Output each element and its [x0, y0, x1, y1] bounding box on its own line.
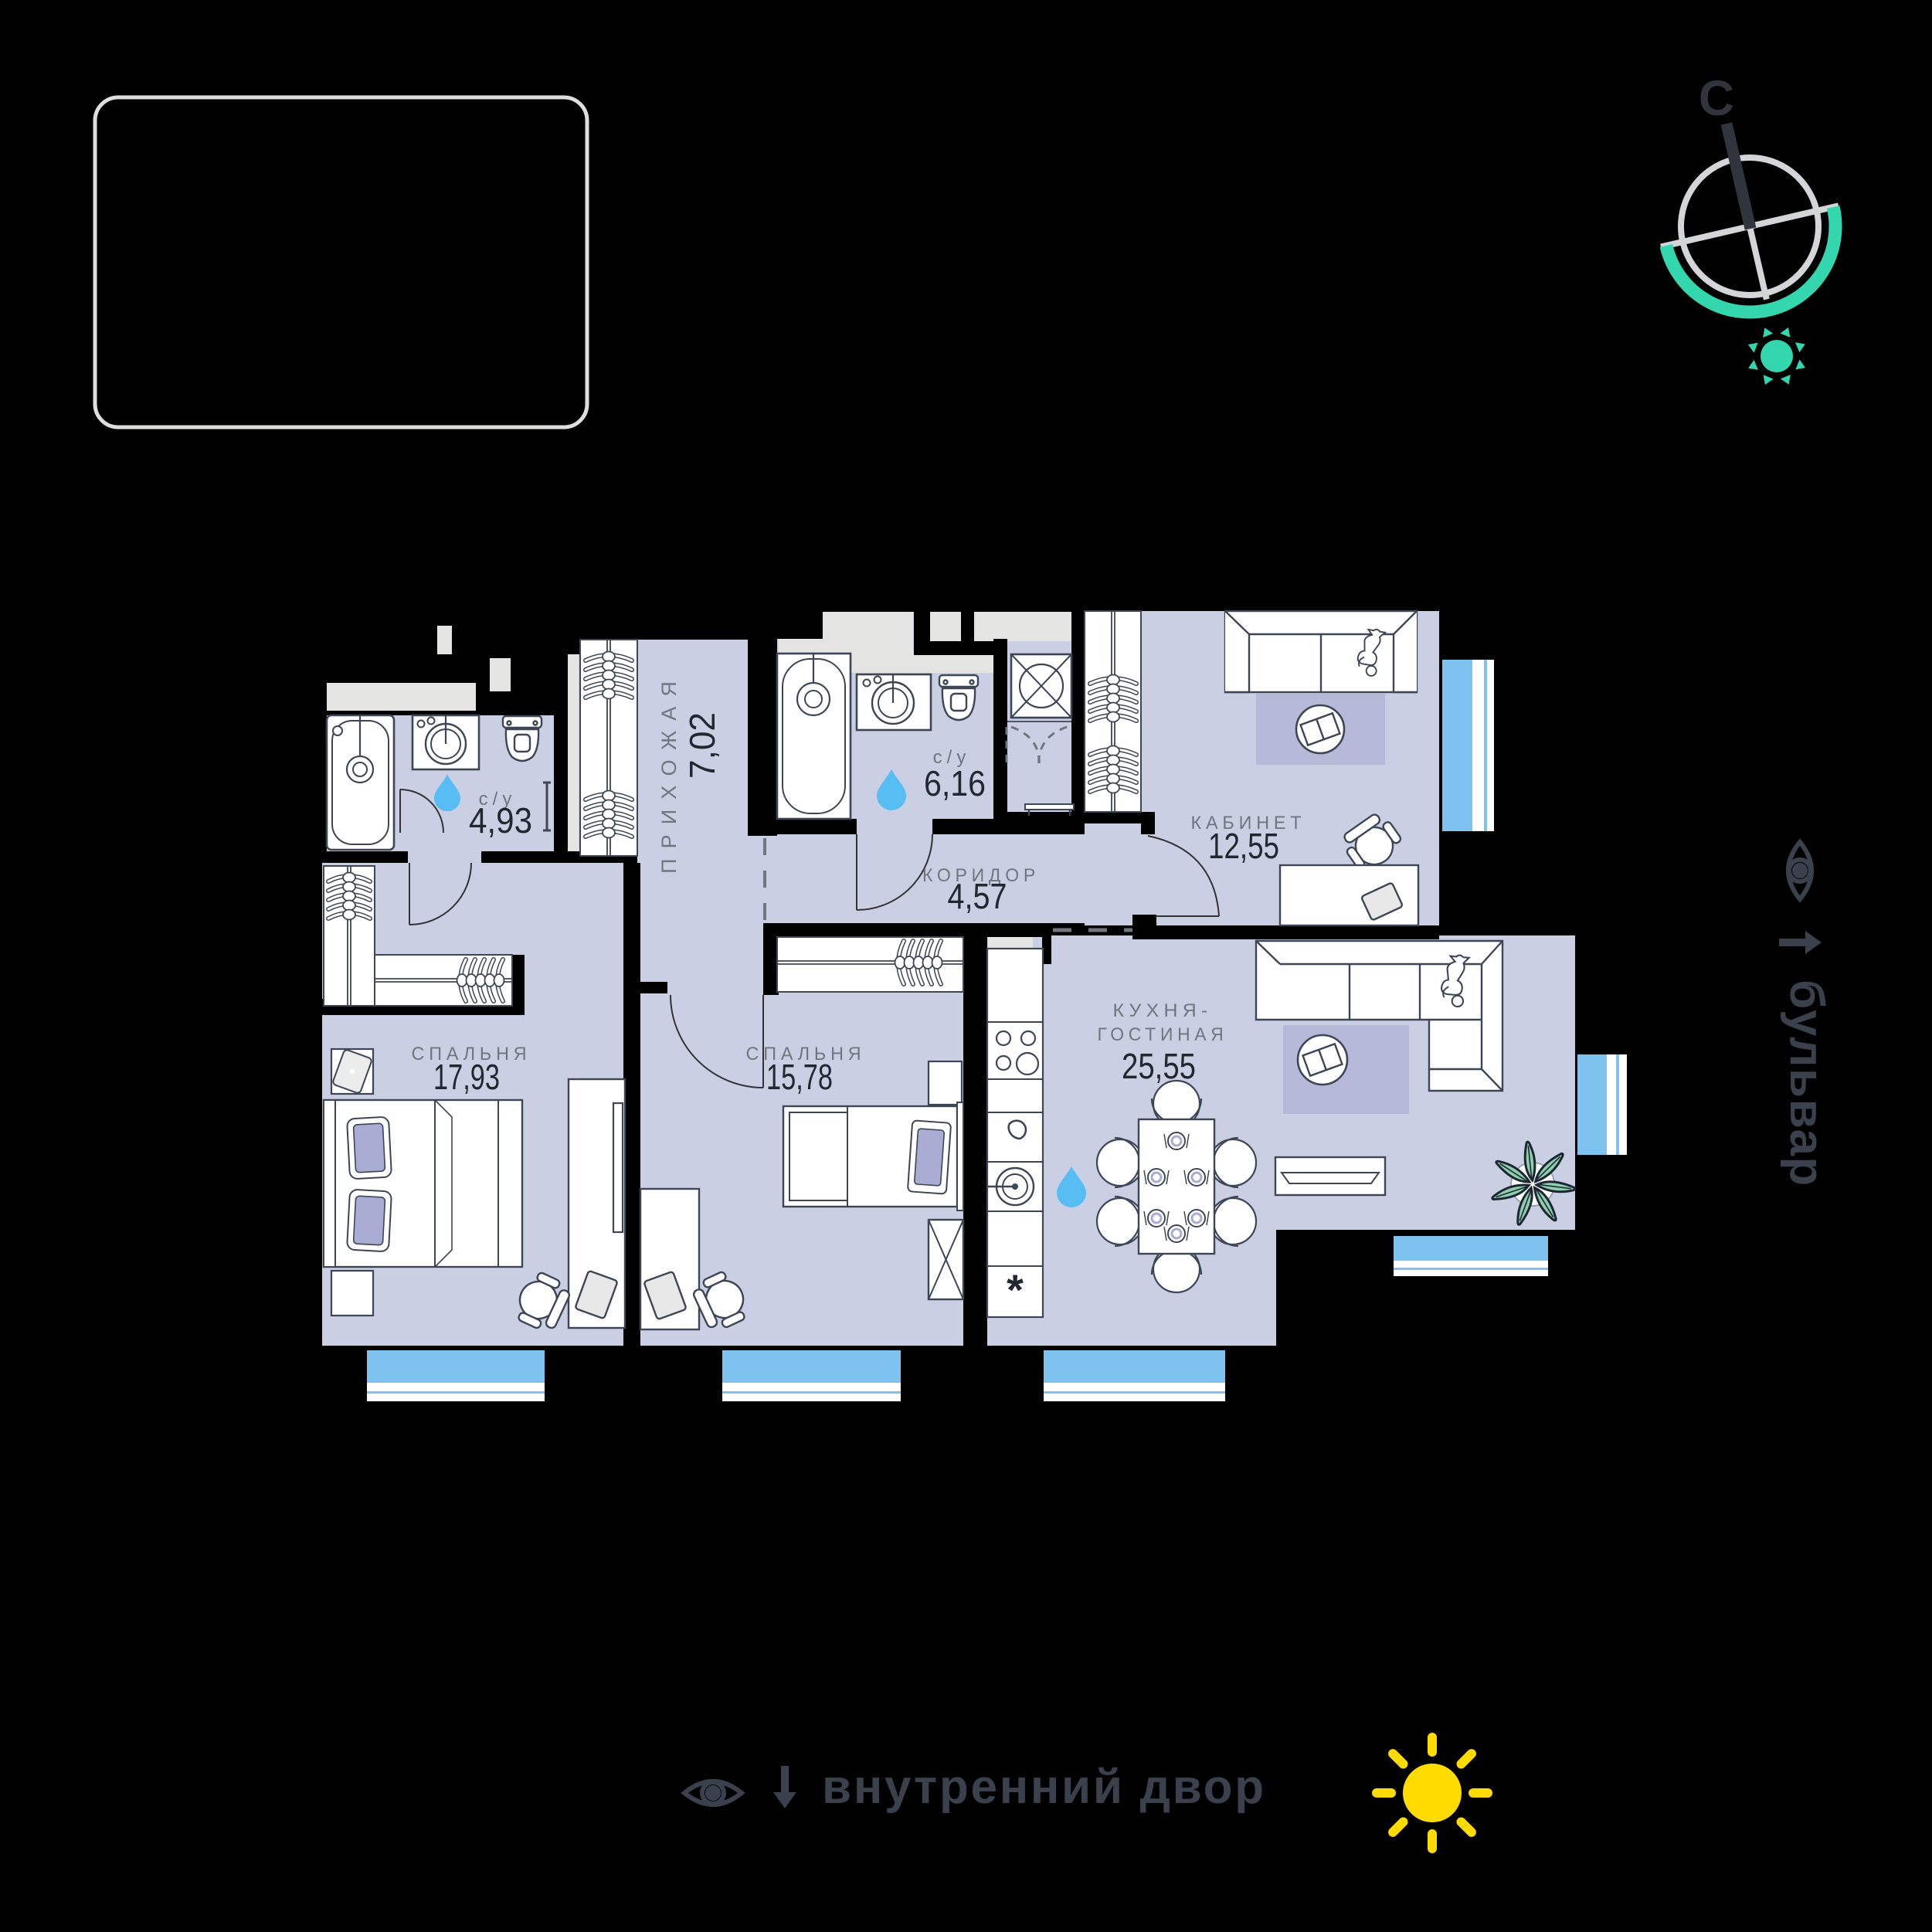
svg-text:25,55: 25,55 [1122, 1046, 1196, 1086]
svg-text:7,02: 7,02 [682, 712, 722, 779]
svg-text:12,55: 12,55 [1208, 826, 1279, 866]
svg-text:15,78: 15,78 [766, 1057, 833, 1097]
svg-text:С: С [1699, 70, 1734, 126]
svg-text:4,93: 4,93 [469, 800, 532, 840]
svg-text:*: * [1007, 1265, 1024, 1314]
svg-text:ПРИХОЖАЯ: ПРИХОЖАЯ [657, 671, 681, 874]
svg-text:17,93: 17,93 [433, 1057, 500, 1097]
svg-text:внутренний двор: внутренний двор [822, 1761, 1266, 1814]
svg-text:КУХНЯ-: КУХНЯ- [1113, 1000, 1213, 1021]
svg-text:4,57: 4,57 [948, 876, 1007, 916]
svg-text:ГОСТИНАЯ: ГОСТИНАЯ [1098, 1024, 1228, 1045]
svg-text:6,16: 6,16 [924, 763, 986, 803]
svg-text:бульвар: бульвар [1780, 980, 1833, 1187]
